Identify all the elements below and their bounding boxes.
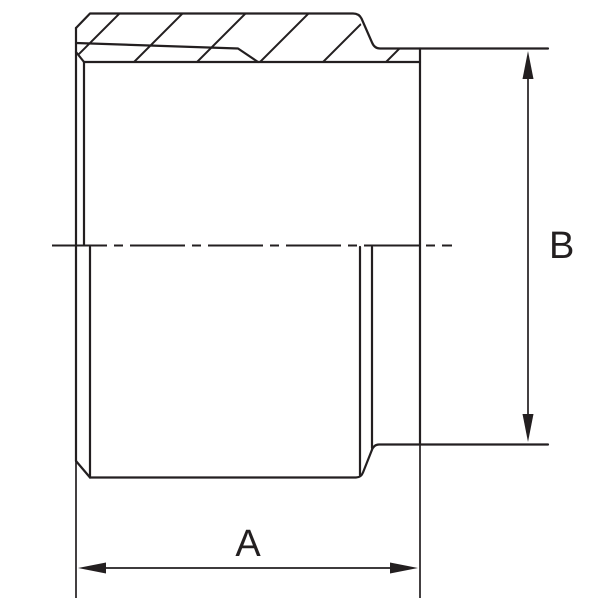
dim-b-arrow-top: [523, 51, 534, 79]
hatch-line: [129, 7, 189, 67]
hatch-line: [192, 7, 252, 67]
dim-b-arrow-bottom: [523, 414, 534, 442]
top-outline: [76, 14, 548, 49]
ferrule-section-drawing: A B: [0, 0, 600, 600]
bottom-left-bevel: [76, 461, 90, 478]
dim-a-arrow-left: [78, 563, 106, 574]
dim-a-arrow-right: [390, 563, 418, 574]
bore-taper-line: [76, 43, 258, 62]
dimension-b: B: [523, 51, 575, 442]
hatch-line: [381, 7, 441, 67]
dimension-a: A: [76, 445, 420, 599]
hatch-line: [255, 7, 315, 67]
dim-b-label: B: [549, 225, 574, 267]
dim-a-label: A: [235, 523, 261, 565]
bottom-outline: [90, 445, 548, 478]
technical-drawing-canvas: A B: [0, 0, 600, 600]
